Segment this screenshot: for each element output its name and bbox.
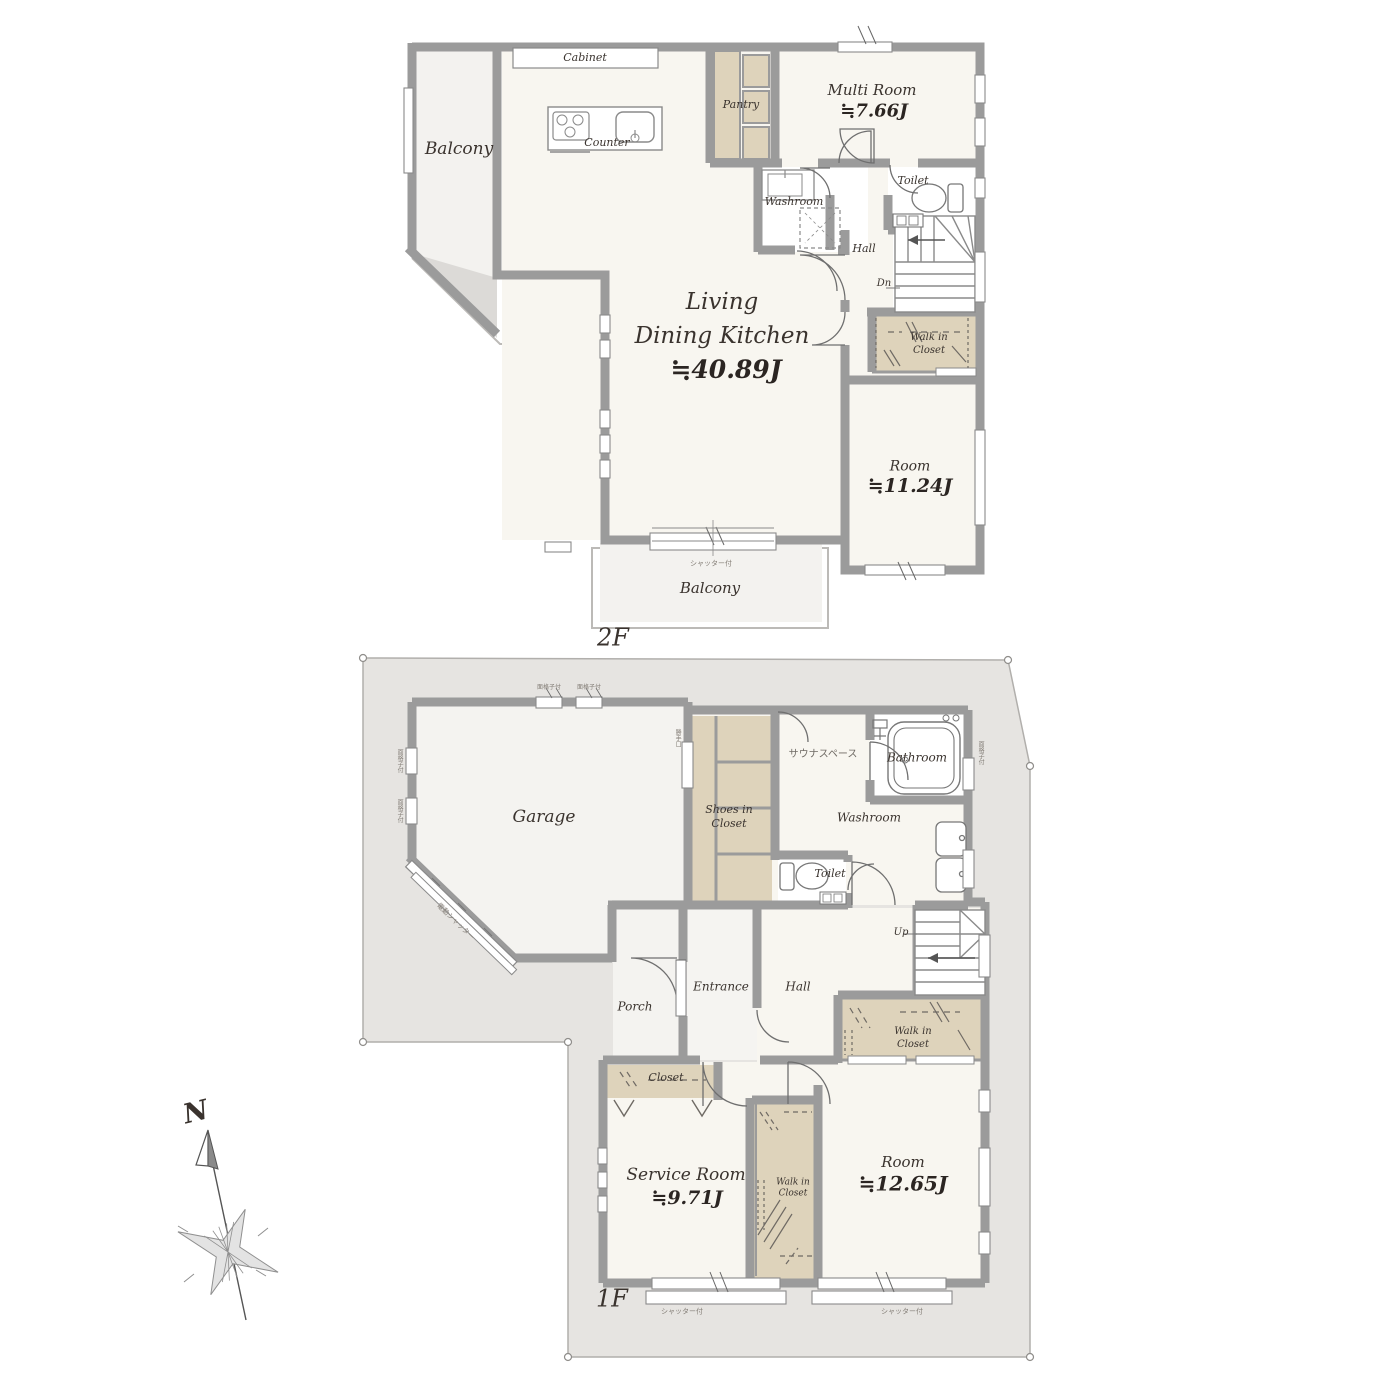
garage-label: Garage: [513, 809, 576, 827]
back-door-note: 勝手口: [674, 729, 680, 747]
compass: [161, 1130, 296, 1320]
wic-right-label-line2: Closet: [897, 1040, 929, 1051]
wic-2f-label-line1: Walk in: [910, 333, 947, 344]
sauna-label: サウナスペース: [789, 750, 858, 761]
grille-note-top2: 面格子付: [577, 685, 601, 691]
wic-right-label-line1: Walk in: [894, 1027, 931, 1038]
balcony-bottom-label: Balcony: [680, 581, 740, 597]
shoes-closet-label-line1: Shoes in: [705, 804, 753, 816]
hall-2f-label: Hall: [852, 243, 875, 255]
wic-mid-label-line1: Walk in: [776, 1178, 810, 1187]
staircase-up: [903, 910, 985, 995]
wic-2f-label-line2: Closet: [913, 346, 945, 357]
porch-label: Porch: [618, 1001, 653, 1014]
room-1f-label: Room: [881, 1155, 925, 1171]
washroom-2f-label: Washroom: [765, 196, 824, 208]
shutter-note-1f-left: シャッター付: [661, 1308, 703, 1315]
ldk-area: ≒40.89J: [670, 357, 781, 383]
balcony-top-label: Balcony: [425, 141, 493, 159]
pantry-label: Pantry: [723, 99, 759, 111]
bathroom-label: Bathroom: [887, 752, 947, 765]
bath-window-note: 面格子付: [977, 741, 983, 765]
hall-1f-label: Hall: [785, 981, 810, 994]
floor-plan-page: Cabinet Balcony Counter Pantry Multi Roo…: [0, 0, 1400, 1400]
grille-note-top1: 面格子付: [537, 685, 561, 691]
closet-label: Closet: [648, 1072, 683, 1084]
wic-mid-label-line2: Closet: [779, 1189, 808, 1198]
service-room-area: ≒9.71J: [651, 1189, 722, 1209]
shoes-closet-label-line2: Closet: [711, 818, 746, 830]
floor2-label: 2F: [597, 625, 629, 650]
counter-label: Counter: [584, 137, 629, 149]
grille-note-left2: 面格子付: [396, 799, 402, 823]
grille-note-left1: 面格子付: [396, 749, 402, 773]
stairs-dn-label: Dn: [877, 279, 891, 290]
multi-room-area: ≒7.66J: [840, 103, 907, 122]
ldk-label-line1: Living: [686, 290, 759, 314]
room-2f-label: Room: [890, 460, 931, 475]
entrance-label: Entrance: [693, 981, 749, 994]
shutter-note-2f: シャッター付: [690, 560, 732, 567]
staircase-down: [886, 216, 975, 312]
room-1f-area: ≒12.65J: [859, 1174, 948, 1195]
service-room-label: Service Room: [626, 1167, 745, 1185]
ldk-label-line2: Dining Kitchen: [635, 324, 810, 348]
toilet-2f-label: Toilet: [897, 175, 928, 187]
multi-room-label: Multi Room: [828, 83, 917, 99]
cabinet-label: Cabinet: [563, 52, 607, 64]
stairs-up-label: Up: [894, 928, 909, 939]
room-2f-area: ≒11.24J: [868, 477, 952, 497]
shutter-note-1f-right: シャッター付: [881, 1308, 923, 1315]
washroom-1f-label: Washroom: [837, 812, 901, 825]
toilet-1f-label: Toilet: [814, 868, 845, 880]
floor1-label: 1F: [596, 1286, 628, 1311]
